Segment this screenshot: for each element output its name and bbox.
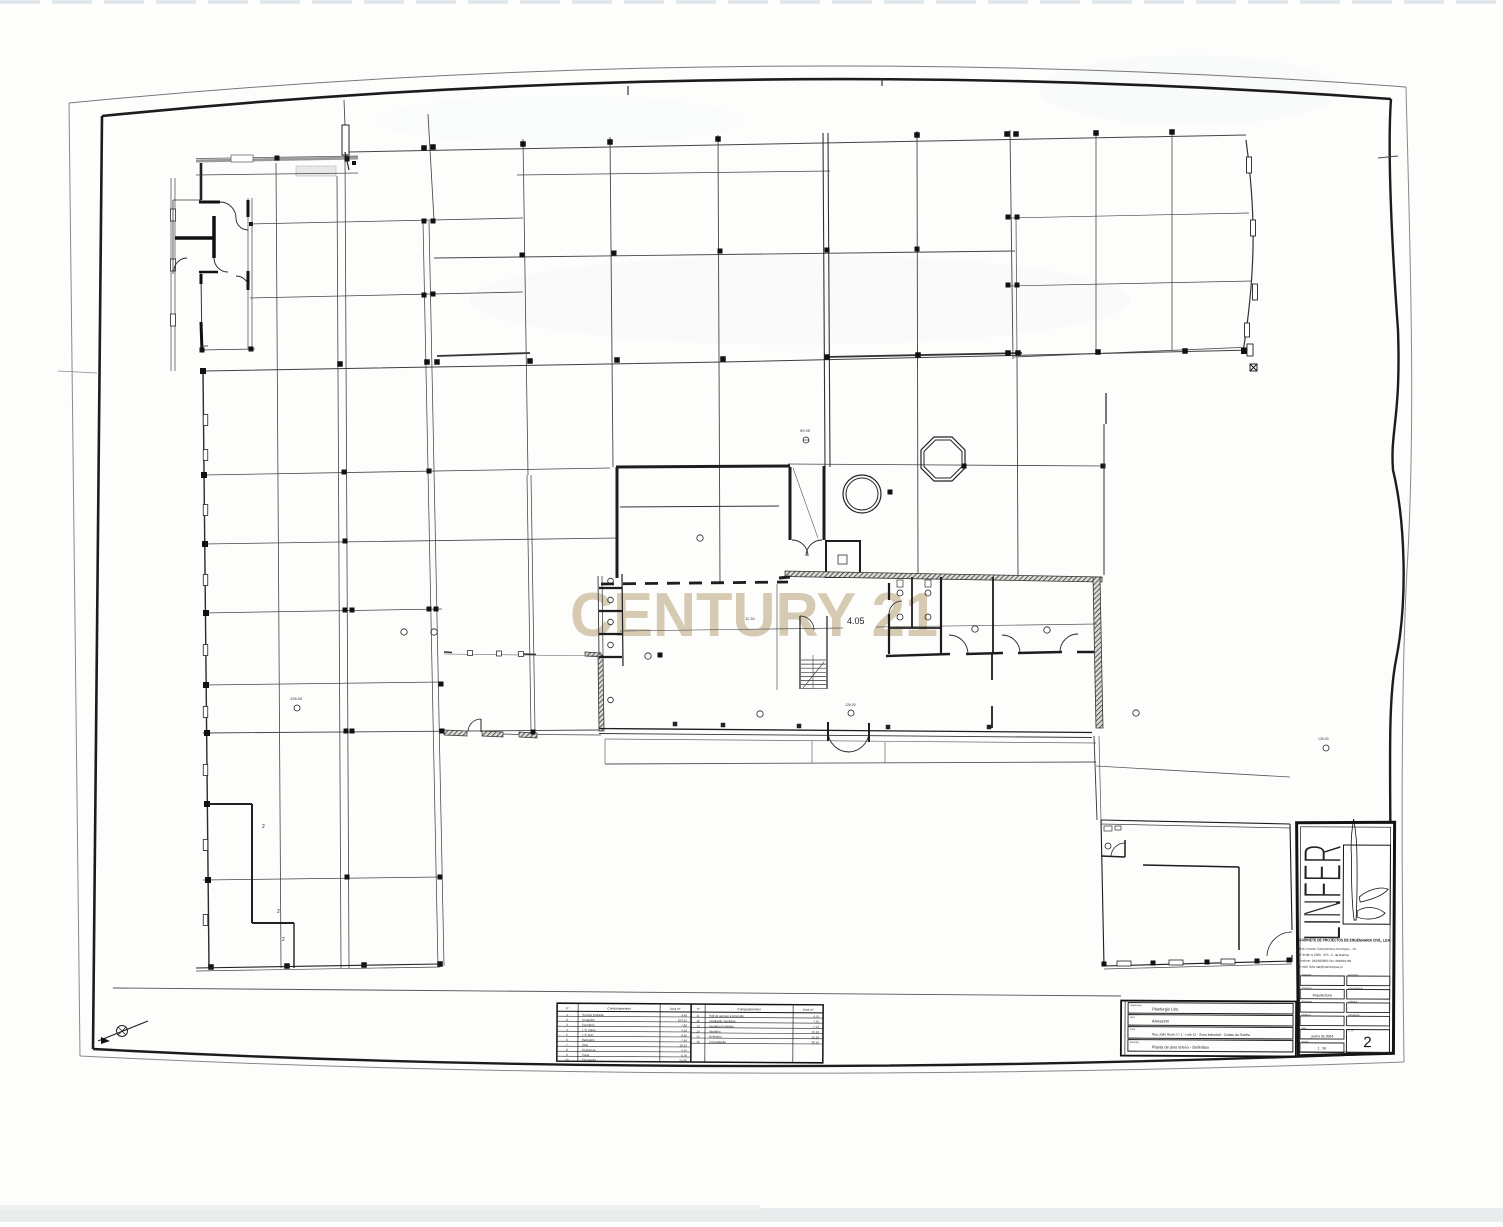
svg-text:873.15: 873.15 [678,1019,688,1023]
svg-text:126.00: 126.00 [290,696,303,701]
svg-text:Compartimentos: Compartimentos [607,1006,631,1010]
svg-text:Escritório: Escritório [582,1023,595,1027]
svg-text:Despensa: Despensa [582,1048,596,1052]
svg-text:Área m²: Área m² [803,1008,814,1012]
svg-text:substitui: substitui [1348,1000,1357,1003]
svg-text:LINFER: LINFER [1291,844,1354,941]
svg-text:E-mail: linfer.lda@mail.telepa: E-mail: linfer.lda@mail.telepac.pt [1299,965,1343,969]
svg-text:2: 2 [282,937,285,943]
svg-text:12: 12 [696,1019,700,1023]
svg-text:Vestiário: Vestiário [709,1030,721,1034]
svg-text:projectou: projectou [1302,987,1313,990]
svg-text:4.05: 4.05 [847,616,865,626]
svg-text:24.36: 24.36 [679,1059,687,1063]
svg-text:Rua Levante Compromisso Henriq: Rua Levante Compromisso Henriques - 49 [1299,947,1356,951]
svg-text:Rua João Ruas n.º 1 - Lote 12: Rua João Ruas n.º 1 - Lote 12 - Zona Ind… [1152,1032,1250,1037]
svg-text:38.18: 38.18 [811,1041,819,1045]
svg-text:data: data [1302,1027,1307,1030]
svg-text:8.16: 8.16 [681,1034,687,1038]
svg-text:7.80: 7.80 [681,1024,687,1028]
svg-text:11.30: 11.30 [745,616,755,621]
svg-text:99.95: 99.95 [800,428,811,433]
svg-text:obra: obra [1130,1016,1135,1019]
svg-text:126.00: 126.00 [1318,737,1329,741]
svg-text:local: local [1130,1028,1135,1031]
svg-text:4.16: 4.16 [681,1029,687,1033]
svg-text:10.12: 10.12 [679,1044,687,1048]
svg-text:2º andar D 2500 - 253 - C.: 2º andar D 2500 - 253 - C. da Rainha [1299,953,1349,957]
svg-text:Planfergix Lda.: Planfergix Lda. [1152,1006,1179,1011]
svg-text:13: 13 [696,1024,700,1028]
svg-text:2: 2 [262,824,265,830]
svg-text:15: 15 [696,1035,700,1039]
svg-text:Planta de piso térreo - Defini: Planta de piso térreo - Definitivo [1152,1044,1210,1049]
svg-text:requereu: requereu [1302,973,1312,976]
svg-text:4.75: 4.75 [813,1015,819,1019]
svg-text:Hall de acesso à Direcção: Hall de acesso à Direcção [709,1014,744,1018]
svg-text:requerente: requerente [1130,1004,1142,1007]
svg-text:Junho de 2004: Junho de 2004 [1311,1034,1334,1038]
svg-text:GABINETE DE PROJECTOS DE ENGEN: GABINETE DE PROJECTOS DE ENGENHARIA CIVI… [1299,937,1390,942]
svg-text:7.46: 7.46 [681,1039,687,1043]
svg-text:especialidade: especialidade [1348,987,1363,990]
svg-text:Refeitório: Refeitório [709,1035,722,1039]
svg-text:7.72: 7.72 [813,1025,819,1029]
svg-text:Armazém: Armazém [582,1018,595,1022]
svg-text:Telefone: 262/832828 Fax:: Telefone: 262/832828 Fax: 262/834782 [1299,959,1352,963]
svg-text:processo: processo [1348,974,1358,977]
svg-text:escala: escala [1301,1040,1309,1043]
svg-text:15.16: 15.16 [811,1035,819,1039]
svg-text:126.00: 126.00 [845,703,856,707]
svg-text:9.40: 9.40 [681,1014,687,1018]
svg-text:Armazém: Armazém [1152,1018,1170,1023]
svg-text:I. S. masc.: I. S. masc. [582,1028,596,1032]
svg-text:fl. nº: fl. nº [1349,1029,1354,1033]
svg-text:Serviço Entrada: Serviço Entrada [582,1013,604,1017]
svg-text:Instalação Sanitária: Instalação Sanitária [709,1019,736,1023]
svg-text:verificou: verificou [1302,1014,1312,1017]
svg-text:7.35: 7.35 [813,1020,819,1024]
svg-text:I. S. fem.: I. S. fem. [582,1033,594,1037]
svg-text:10: 10 [565,1058,569,1062]
svg-text:6.78: 6.78 [681,1054,687,1058]
svg-text:4.75: 4.75 [681,1049,687,1053]
svg-text:16: 16 [696,1040,700,1044]
svg-text:15.16: 15.16 [811,1030,819,1034]
svg-text:Área m²: Área m² [670,1007,681,1011]
svg-text:14: 14 [696,1029,700,1033]
svg-text:Vestiário Feminino: Vestiário Feminino [709,1024,734,1028]
svg-text:Circulação: Circulação [582,1058,597,1062]
svg-text:desenhou: desenhou [1302,1000,1313,1003]
svg-text:substituído: substituído [1348,1014,1360,1017]
svg-text:2: 2 [277,909,280,915]
svg-text:Copa: Copa [582,1053,590,1057]
svg-text:desenho: desenho [1130,1041,1140,1044]
svg-text:Compartimentos: Compartimentos [737,1007,761,1011]
svg-text:Arquitectura: Arquitectura [1313,993,1332,997]
svg-text:Balneário: Balneário [582,1038,595,1042]
svg-text:11: 11 [697,1014,700,1018]
svg-text:1 : 50: 1 : 50 [1318,1046,1327,1050]
svg-text:2: 2 [1363,1034,1371,1051]
svg-text:Átrio: Átrio [582,1043,589,1047]
svg-text:Arrecadação: Arrecadação [709,1040,726,1044]
